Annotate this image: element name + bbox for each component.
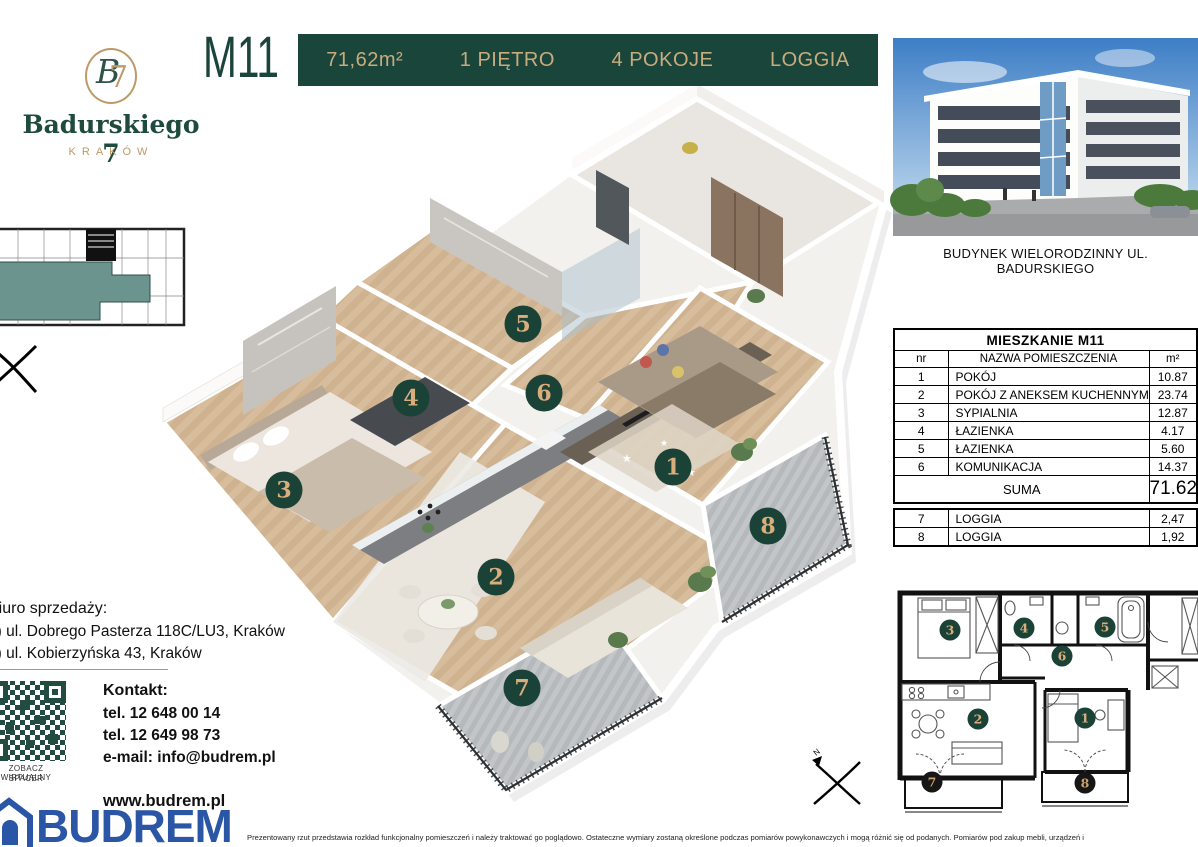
room-badge-8: 8 [1075,773,1096,794]
logo-digit-7: 7 [109,60,128,95]
room-table: MIESZKANIE M11 nr NAZWA POMIESZCZENIA m²… [893,328,1198,504]
room-badge-2: 2 [478,559,515,596]
room-badge-1: 1 [655,449,692,486]
svg-text:★: ★ [660,438,668,448]
col-header-area: m² [1149,351,1197,368]
north-compass-left [0,344,36,392]
loggia-table: 7LOGGIA2,478LOGGIA1,92 [893,508,1198,547]
phone-2: tel. 12 649 98 73 [103,727,220,745]
hall-wardrobe [711,177,783,297]
svg-text:★: ★ [622,453,632,465]
shower-glass [562,228,640,342]
sales-office-label: Biuro sprzedaży: [0,600,107,618]
col-header-nr: nr [894,351,948,368]
contact-label: Kontakt: [103,682,168,700]
plan-2d: N [812,593,1198,812]
north-compass-2d: N [812,747,860,804]
phone-1: tel. 12 648 00 14 [103,705,220,723]
sum-value: 71.62 [1149,476,1197,504]
room-badge-7: 7 [504,670,541,707]
header-floor-label: 1 PIĘTRO [460,49,555,72]
table-row: 6KOMUNIKACJA14.37 [894,458,1197,476]
building-photo [890,38,1198,236]
room-badge-4: 4 [1014,618,1035,639]
table-row: 3SYPIALNIA12.87 [894,404,1197,422]
room-badge-6: 6 [526,375,563,412]
qr-caption-line2: SPACER [0,774,68,783]
room-badge-1: 1 [1075,708,1096,729]
room-badge-5: 5 [505,306,542,343]
room-badge-5: 5 [1095,617,1116,638]
room-table-body: 1POKÓJ10.872POKÓJ Z ANEKSEM KUCHENNYM23.… [894,368,1197,476]
sales-office-address-1: 1) ul. Dobrego Pasterza 118C/LU3, Kraków [0,623,285,641]
room-badge-8: 8 [750,508,787,545]
building-photo-caption: BUDYNEK WIELORODZINNY UL. BADURSKIEGO [893,246,1198,276]
table-row: 5ŁAZIENKA5.60 [894,440,1197,458]
bedroom3-floor [163,324,505,622]
budrem-logo-text: BUDREM [36,799,232,847]
unit-highlight [0,262,150,320]
header-rooms-label: 4 POKOJE [612,49,714,72]
marble-wall [430,198,562,316]
loggia7-floor [438,612,662,790]
sales-office-address-2: 2) ul. Kobierzyńska 43, Kraków [0,645,202,663]
loggia-table-body: 7LOGGIA2,478LOGGIA1,92 [894,509,1197,546]
room-badge-3: 3 [940,620,961,641]
corridor-floor [505,282,752,445]
flyer-page: ★ ★ ★ [0,0,1198,847]
loggia-railings [438,437,848,790]
entry-door [596,170,629,245]
project-city: KRAKÓW [20,146,202,158]
table-row: 8LOGGIA1,92 [894,528,1197,547]
kitchen-counter [352,405,632,564]
room-badge-2: 2 [968,709,989,730]
sofa [520,578,688,678]
col-header-name: NAZWA POMIESZCZENIA [948,351,1149,368]
table-row: 4ŁAZIENKA4.17 [894,422,1197,440]
table-row: 2POKÓJ Z ANEKSEM KUCHENNYM23.74 [894,386,1197,404]
table-row: 7LOGGIA2,47 [894,509,1197,528]
bath5-floor [357,230,585,368]
logo-monogram: B 7 [85,48,137,104]
plants [422,142,765,762]
email: e-mail: info@budrem.pl [103,749,276,767]
plan-2d-doors [916,622,1168,778]
room-badge-6: 6 [1052,646,1073,667]
bed [598,326,778,428]
kitchen-marble-floor [333,452,545,682]
room-badge-7: 7 [922,772,943,793]
dining-table [418,595,478,629]
room1-floor [575,288,828,505]
media-wall [560,342,772,465]
compass-n-label: N [812,747,822,758]
header-bar: 71,62m² 1 PIĘTRO 4 POKOJE LOGGIA [298,34,878,86]
room-badge-4: 4 [393,380,430,417]
table-row: 1POKÓJ10.87 [894,368,1197,386]
entry-hall-floor [572,99,878,282]
marble-wall [243,286,336,415]
project-name: Badurskiego 7 [20,110,202,168]
disclaimer-text: Prezentowany rzut przedstawia rozkład fu… [247,833,1197,842]
contact-divider [0,669,168,670]
qr-code [0,681,66,761]
budrem-logo-icon [0,801,30,847]
mini-floorplan [0,229,184,325]
sum-label: SUMA [894,476,1149,504]
unit-number: M11 [203,29,279,87]
room-table-title: MIESZKANIE M11 [894,329,1197,351]
header-loggia-label: LOGGIA [770,49,850,72]
header-area-label: 71,62m² [326,49,403,72]
room-badge-3: 3 [266,472,303,509]
